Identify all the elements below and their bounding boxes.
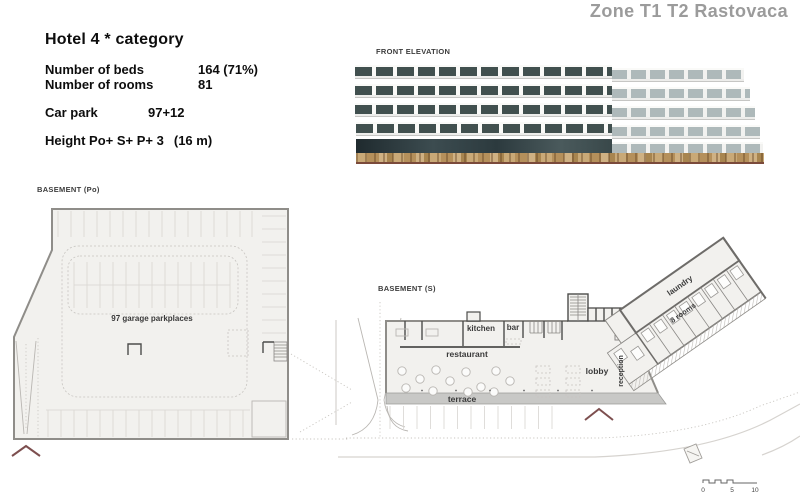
- elevation-floor-band: [612, 87, 750, 100]
- elevation-floor-band: [356, 122, 612, 135]
- room-label-restaurant: restaurant: [446, 349, 488, 359]
- presentation-slide: Zone T1 T2 Rastovaca Hotel 4 * category …: [0, 0, 800, 498]
- entrance-chevron-icon: [585, 409, 613, 420]
- s-stair-icon: [568, 294, 588, 321]
- page-title: Zone T1 T2 Rastovaca: [590, 1, 788, 22]
- elevation-floor-band: [612, 68, 744, 81]
- info-label: Number of beds: [45, 62, 198, 77]
- info-label: Height Po+ S+ P+ 3: [45, 133, 164, 148]
- elevation-floor-band: [612, 125, 760, 138]
- s-chimney: [467, 312, 480, 321]
- s-parking-ticks: [390, 406, 552, 429]
- po-outline-fill: [14, 209, 288, 439]
- elevation-floor-band: [355, 84, 612, 97]
- table-icon: [432, 366, 440, 374]
- info-label: Car park: [45, 105, 148, 120]
- info-value: 164 (71%): [198, 62, 258, 77]
- info-value: 81: [198, 77, 212, 92]
- scale-tick-label: 0: [701, 487, 705, 494]
- front-elevation-label: FRONT ELEVATION: [376, 47, 450, 56]
- info-row-beds: Number of beds 164 (71%): [45, 62, 258, 77]
- room-label-terrace: terrace: [448, 394, 477, 404]
- info-heading: Hotel 4 * category: [45, 31, 184, 49]
- room-label-kitchen: kitchen: [467, 324, 495, 333]
- basement-po-plan: 97 garage parkplaces: [0, 195, 345, 465]
- elevation-floor-band: [355, 65, 612, 78]
- info-block: Number of beds 164 (71%) Number of rooms…: [45, 62, 258, 148]
- room-label-reception: reception: [618, 355, 625, 387]
- info-value: 97+12: [148, 105, 185, 120]
- info-label: Number of rooms: [45, 77, 198, 92]
- elevation-floor-band: [355, 103, 612, 116]
- po-annotation: 97 garage parkplaces: [111, 314, 193, 323]
- table-icon: [490, 388, 498, 396]
- basement-po-label: BASEMENT (Po): [37, 185, 100, 194]
- table-icon: [402, 384, 410, 392]
- elevation-stone-base: [356, 153, 764, 164]
- table-icon: [398, 367, 406, 375]
- table-icon: [429, 387, 437, 395]
- room-label-bar: bar: [507, 323, 519, 332]
- room-label-lobby: lobby: [586, 366, 609, 376]
- info-row-height: Height Po+ S+ P+ 3 (16 m): [45, 133, 258, 148]
- table-icon: [477, 383, 485, 391]
- info-row-carpark: Car park 97+12: [45, 105, 258, 120]
- table-icon: [446, 377, 454, 385]
- elevation-ground-band: [356, 139, 612, 153]
- table-icon: [506, 377, 514, 385]
- table-icon: [492, 367, 500, 375]
- scale-tick-label: 5: [730, 487, 734, 494]
- table-icon: [416, 375, 424, 383]
- info-value: (16 m): [174, 133, 212, 148]
- info-row-rooms: Number of rooms 81: [45, 77, 258, 92]
- elevation-floor-band: [612, 106, 755, 119]
- s-terrace: [386, 393, 666, 404]
- table-icon: [462, 368, 470, 376]
- scale-tick-label: 10: [751, 487, 759, 494]
- front-elevation-drawing: [355, 62, 767, 164]
- scale-bar: 0 5 10: [701, 480, 759, 494]
- basement-s-plan: laundry 8 rooms kitchen bar restaurant l…: [330, 215, 800, 498]
- entrance-chevron-icon: [12, 446, 40, 456]
